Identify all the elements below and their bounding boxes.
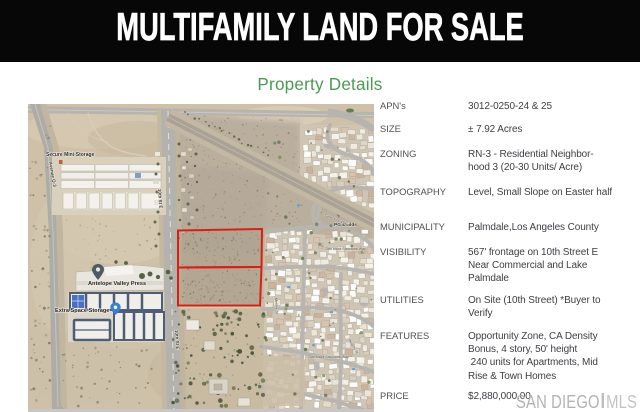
svg-text:Mennik St: Mennik St <box>274 298 279 314</box>
svg-text:Extra Space Storage: Extra Space Storage <box>55 308 109 314</box>
svg-text:25th block Structural Way: 25th block Structural Way <box>308 355 349 359</box>
svg-text:Antelope Valley Press: Antelope Valley Press <box>88 281 146 287</box>
svg-text:25th block Structural Way: 25th block Structural Way <box>325 247 366 251</box>
svg-text:Secure Mini-Storage: Secure Mini-Storage <box>46 152 95 158</box>
